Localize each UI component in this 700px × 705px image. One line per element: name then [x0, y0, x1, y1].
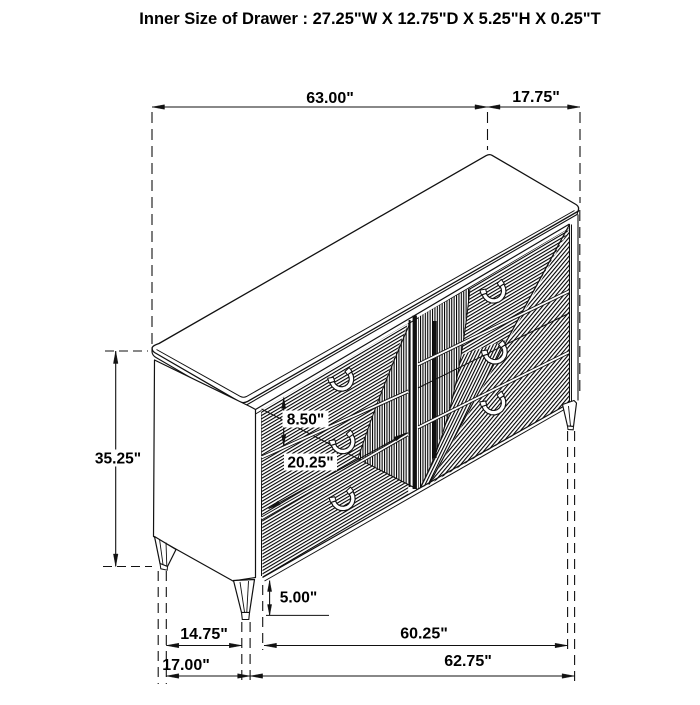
svg-text:8.50": 8.50" — [287, 412, 325, 429]
svg-text:62.75": 62.75" — [444, 653, 492, 670]
svg-text:17.75": 17.75" — [512, 89, 560, 106]
svg-text:Inner Size of Drawer : 27.25"W: Inner Size of Drawer : 27.25"W X 12.75"D… — [139, 10, 600, 28]
svg-text:60.25": 60.25" — [400, 626, 448, 643]
svg-text:14.75": 14.75" — [180, 626, 228, 643]
svg-text:20.25": 20.25" — [287, 455, 333, 472]
svg-text:17.00": 17.00" — [162, 657, 210, 674]
svg-text:35.25": 35.25" — [95, 451, 141, 468]
svg-text:63.00": 63.00" — [306, 90, 354, 107]
svg-text:5.00": 5.00" — [280, 590, 318, 607]
